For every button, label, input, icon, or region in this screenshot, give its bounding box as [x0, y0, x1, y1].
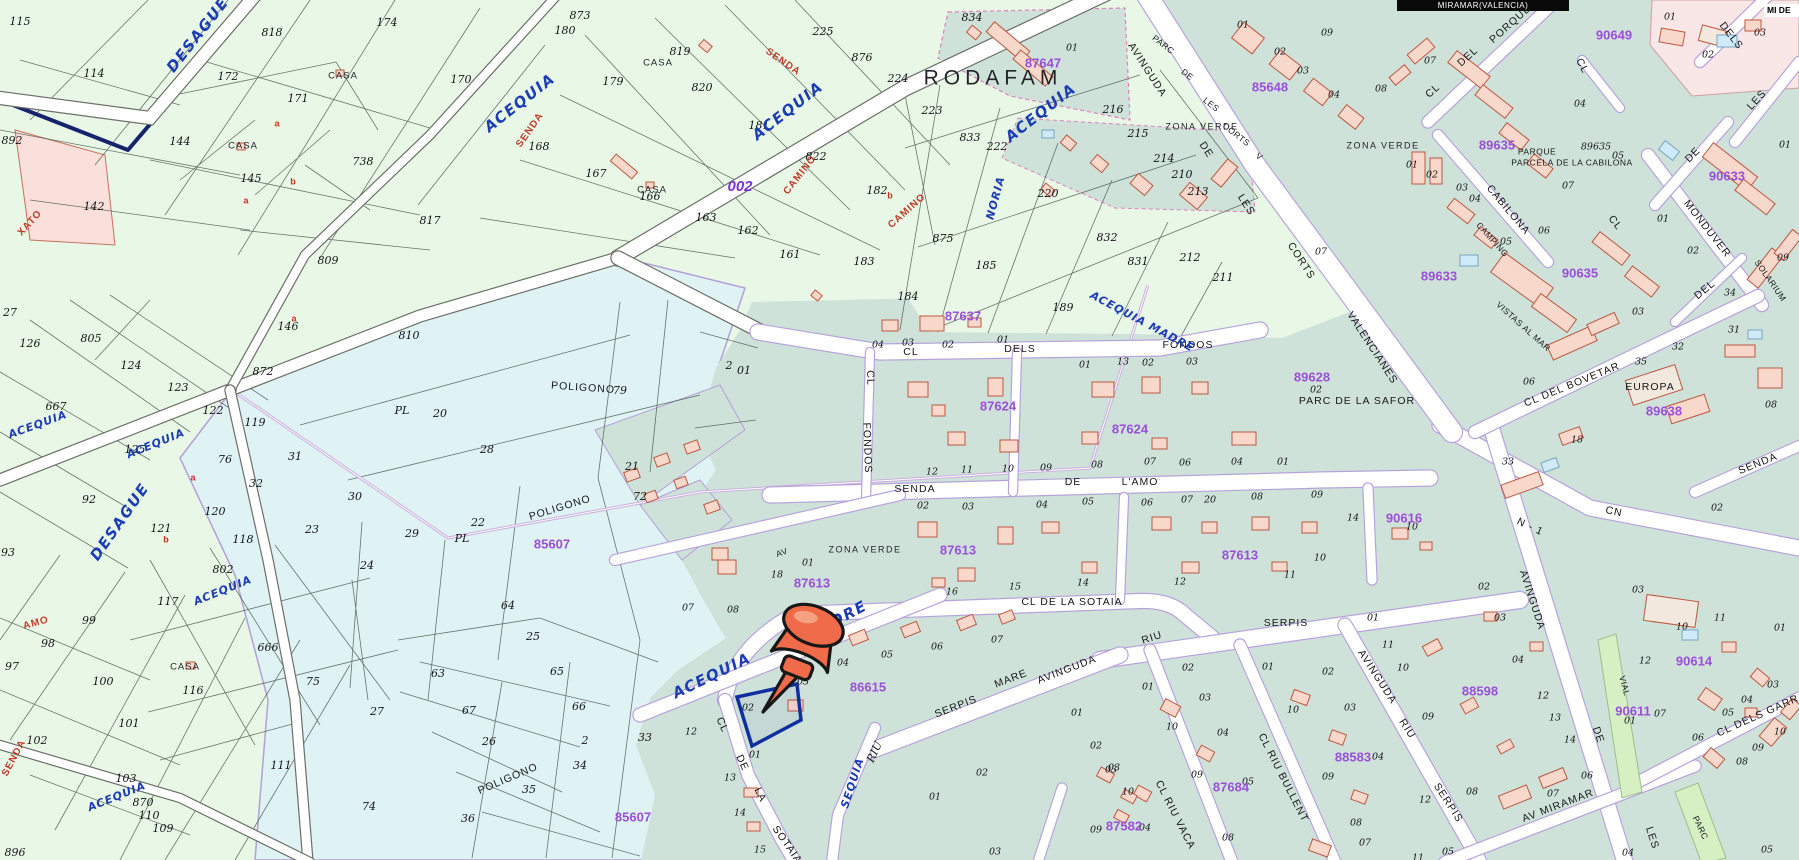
- map-label: PARC DE LA SAFOR: [1299, 395, 1415, 407]
- map-label: 833: [960, 131, 981, 144]
- map-label: 06: [1141, 498, 1153, 509]
- map-label: 100: [93, 675, 114, 688]
- map-label: 06: [1523, 377, 1535, 388]
- map-label: 102: [27, 734, 48, 747]
- edge-partial-label: MI DE: [1764, 4, 1799, 17]
- map-label: 118: [233, 533, 254, 546]
- map-label: 03: [1344, 703, 1356, 714]
- map-label: 90616: [1386, 510, 1422, 525]
- map-label: 01: [1406, 160, 1418, 171]
- map-label: 892: [2, 134, 23, 147]
- map-label: 67: [462, 704, 476, 717]
- map-label: 92: [82, 493, 96, 506]
- map-label: 01: [1367, 613, 1379, 624]
- map-label: 87582: [1106, 818, 1142, 833]
- map-label: 666: [258, 641, 279, 654]
- map-label: 144: [170, 135, 191, 148]
- map-label: 10: [1397, 663, 1409, 674]
- map-sheet-title: MIRAMAR(VALENCIA): [1397, 0, 1569, 11]
- map-label: 06: [1581, 771, 1593, 782]
- map-label: 98: [41, 637, 55, 650]
- map-label: 21: [624, 460, 639, 473]
- map-label: 06: [1179, 458, 1191, 469]
- map-label: 05: [1442, 847, 1454, 858]
- map-label: 64: [501, 599, 515, 612]
- map-label: 85607: [534, 536, 570, 551]
- map-label: 121: [151, 522, 172, 535]
- map-label: 09: [1752, 743, 1764, 754]
- map-label: 88598: [1462, 683, 1498, 698]
- map-label: 10: [1002, 464, 1014, 475]
- map-label: 75: [306, 675, 320, 688]
- map-label: 10: [1676, 622, 1688, 633]
- map-label: 14: [1077, 578, 1089, 589]
- map-label: 170: [451, 73, 472, 86]
- map-label: CASA: [328, 71, 358, 82]
- map-label: 12: [1639, 656, 1651, 667]
- map-label: 87624: [980, 398, 1017, 413]
- map-label: 16: [946, 587, 958, 598]
- map-label: 122: [203, 404, 224, 417]
- map-label: 09: [1321, 28, 1333, 39]
- map-label: 02: [1322, 667, 1334, 678]
- map-label: 04: [1469, 194, 1481, 205]
- map-label: 213: [1187, 185, 1209, 198]
- map-label: 215: [1127, 127, 1149, 140]
- map-label: 109: [153, 822, 174, 835]
- map-label: 15: [754, 845, 766, 856]
- map-label: 12: [1174, 577, 1186, 588]
- map-label: 07: [991, 635, 1004, 646]
- map-label: 03: [1186, 357, 1198, 368]
- map-label: 805: [81, 332, 102, 345]
- map-label: 29: [404, 527, 419, 540]
- map-label: 01: [1774, 623, 1786, 634]
- map-label: 32: [249, 477, 263, 490]
- map-label: 01: [1277, 457, 1289, 468]
- map-label: 02: [1426, 170, 1438, 181]
- map-label: 11: [1714, 613, 1726, 624]
- map-label: 87613: [1222, 547, 1258, 562]
- map-label: 182: [867, 184, 888, 197]
- map-label: 211: [1212, 271, 1234, 284]
- map-label: 04: [872, 340, 884, 351]
- map-label: 14: [1564, 735, 1576, 746]
- map-label: 126: [20, 337, 41, 350]
- map-label: 03: [962, 502, 974, 513]
- map-label: 142: [84, 200, 105, 213]
- map-label: 168: [529, 140, 550, 153]
- map-label: 124: [121, 359, 142, 372]
- map-label: 06: [1692, 733, 1704, 744]
- map-label: 07: [1424, 56, 1437, 67]
- map-label: 63: [431, 667, 445, 680]
- map-label: 20: [1203, 495, 1216, 506]
- map-label: RODAFAM: [924, 67, 1063, 90]
- map-label: 08: [1222, 833, 1234, 844]
- map-label: 225: [812, 25, 834, 38]
- map-label: 870: [133, 796, 154, 809]
- map-label: 184: [898, 290, 919, 303]
- map-label: 224: [887, 72, 909, 85]
- map-label: 14: [734, 808, 746, 819]
- map-label: CASA: [643, 58, 673, 69]
- map-label: 90633: [1709, 168, 1745, 183]
- map-label: 72: [633, 490, 647, 503]
- map-label: 33: [1502, 457, 1514, 468]
- map-label: 802: [213, 563, 234, 576]
- map-label: 111: [271, 759, 292, 772]
- map-label: 07: [1547, 789, 1560, 800]
- map-label: 02: [1711, 503, 1723, 514]
- map-label: 12: [1537, 691, 1549, 702]
- map-label: 214: [1153, 152, 1175, 165]
- map-label: 02: [917, 501, 929, 512]
- map-label: 04: [1372, 752, 1384, 763]
- map-label: 10: [1166, 722, 1178, 733]
- map-label: 145: [241, 172, 262, 185]
- map-label: 89638: [1646, 403, 1682, 418]
- map-label: 87684: [1213, 779, 1250, 794]
- map-label: 810: [399, 329, 420, 342]
- map-label: 171: [288, 92, 309, 105]
- map-label: 101: [119, 717, 140, 730]
- map-label: 08: [1350, 818, 1362, 829]
- map-label: PL: [394, 404, 410, 417]
- map-label: 01: [1657, 214, 1669, 225]
- map-label: 01: [749, 750, 761, 761]
- map-label: 896: [5, 846, 26, 859]
- map-label: 07: [1359, 838, 1372, 849]
- map-label: 04: [837, 658, 849, 669]
- map-label: 03: [1767, 680, 1779, 691]
- map-label: 162: [738, 224, 759, 237]
- map-label: 31: [1728, 325, 1740, 336]
- map-label: 12: [1419, 795, 1431, 806]
- map-label: 116: [183, 684, 204, 697]
- map-label: 183: [854, 255, 875, 268]
- map-label: 2: [725, 359, 733, 372]
- map-label: 119: [245, 416, 266, 429]
- map-label: CL: [903, 346, 918, 358]
- map-label: 07: [682, 603, 695, 614]
- map-label: 07: [1144, 457, 1157, 468]
- map-label: 74: [362, 800, 376, 813]
- map-label: 03: [1632, 307, 1644, 318]
- map-label: 99: [82, 614, 96, 627]
- map-label: 01: [737, 364, 751, 377]
- map-label: 07: [1315, 247, 1328, 258]
- map-label: 163: [696, 211, 717, 224]
- map-label: 08: [1466, 787, 1478, 798]
- map-label: 114: [84, 67, 105, 80]
- map-label: 04: [1036, 500, 1048, 511]
- map-label: 04: [1231, 457, 1243, 468]
- map-label: 04: [1328, 90, 1340, 101]
- map-label: 90635: [1562, 265, 1598, 280]
- map-label: 876: [852, 51, 873, 64]
- map-label: 10: [1122, 787, 1134, 798]
- map-label: 01: [1664, 12, 1676, 23]
- map-label: 174: [377, 16, 398, 29]
- map-label: 11: [961, 465, 973, 476]
- map-label: 01: [1142, 682, 1154, 693]
- map-label: 90614: [1676, 653, 1713, 668]
- map-label: 65: [550, 665, 564, 678]
- map-label: 834: [962, 11, 983, 24]
- map-label: 34: [1724, 288, 1736, 299]
- map-label: 03: [1632, 585, 1644, 596]
- map-label: 03: [1754, 28, 1766, 39]
- map-label: 09: [1422, 712, 1434, 723]
- map-label: FONDOS: [860, 422, 874, 473]
- map-label: 10: [1774, 727, 1786, 738]
- map-label: 90611: [1615, 703, 1650, 718]
- map-label: 01: [1237, 20, 1249, 31]
- map-label: 01: [1262, 662, 1274, 673]
- map-label: PARCELA DE LA CABILONA: [1511, 157, 1632, 167]
- map-label: 04: [1741, 695, 1753, 706]
- map-label: 01: [1079, 360, 1091, 371]
- map-label: 120: [205, 505, 226, 518]
- cadastral-map-viewport[interactable]: 1151148181741721711441457381428928178738…: [0, 0, 1799, 860]
- map-label: 820: [692, 81, 713, 94]
- map-label: 34: [573, 759, 587, 772]
- map-label: 12: [685, 727, 697, 738]
- map-label: 123: [168, 381, 189, 394]
- map-label: 872: [253, 365, 274, 378]
- map-label: 11: [1382, 640, 1394, 651]
- map-label: 03: [1456, 183, 1468, 194]
- map-label: 32: [1672, 342, 1684, 353]
- map-label: 172: [218, 70, 239, 83]
- map-label: 738: [353, 155, 374, 168]
- map-label: 02: [1274, 47, 1286, 58]
- map-label: 93: [1, 546, 15, 559]
- map-label: 07: [1654, 709, 1667, 720]
- map-label: 08: [1765, 400, 1777, 411]
- map-label: 10: [1314, 553, 1326, 564]
- map-label: 809: [318, 254, 339, 267]
- cadastral-map[interactable]: 1151148181741721711441457381428928178738…: [0, 0, 1799, 860]
- map-label: 87613: [940, 542, 976, 557]
- map-label: 97: [5, 660, 19, 673]
- map-label: 06: [931, 642, 943, 653]
- map-label: 28: [479, 443, 494, 456]
- map-label: 07: [1181, 495, 1194, 506]
- map-label: L'AMO: [1122, 476, 1159, 488]
- map-label: 110: [139, 809, 160, 822]
- map-label: 27: [369, 705, 384, 718]
- map-label: 167: [586, 167, 607, 180]
- map-label: 873: [570, 9, 591, 22]
- map-label: 90649: [1596, 27, 1632, 42]
- map-label: 35: [522, 783, 536, 796]
- map-label: 02: [1687, 246, 1699, 257]
- map-label: DELS: [1004, 343, 1035, 355]
- map-label: 18: [771, 570, 783, 581]
- map-label: 09: [1311, 490, 1323, 501]
- map-label: CL DE LA SOTAIA: [1021, 596, 1122, 608]
- map-label: 03: [1494, 613, 1506, 624]
- map-label: 13: [1117, 357, 1129, 368]
- map-label: 86615: [850, 679, 886, 694]
- map-label: 179: [603, 75, 624, 88]
- map-label: 02: [1478, 582, 1490, 593]
- map-label: 20: [432, 407, 447, 420]
- map-label: 002: [727, 178, 753, 195]
- map-label: ZONA VERDE: [1346, 140, 1419, 150]
- map-label: 216: [1102, 103, 1124, 116]
- map-label: SENDA: [894, 483, 935, 495]
- map-label: 04: [1622, 848, 1634, 859]
- map-label: 03: [1108, 763, 1120, 774]
- map-label: 212: [1179, 251, 1201, 264]
- map-label: 85648: [1252, 79, 1288, 94]
- map-label: 832: [1097, 231, 1118, 244]
- map-label: 2: [581, 734, 589, 747]
- map-label: 08: [1251, 492, 1263, 503]
- map-label: 04: [1217, 728, 1229, 739]
- map-label: 30: [348, 490, 362, 503]
- map-label: 01: [1066, 43, 1078, 54]
- map-label: 09: [1777, 253, 1789, 264]
- map-label: 88583: [1335, 749, 1371, 764]
- map-label: 03: [1199, 693, 1211, 704]
- map-label: 23: [304, 523, 319, 536]
- map-label: 33: [638, 731, 652, 744]
- map-label: 117: [158, 595, 179, 608]
- map-label: 89628: [1294, 369, 1330, 384]
- map-label: 11: [1284, 570, 1296, 581]
- map-label: 05: [1082, 497, 1094, 508]
- map-label: 818: [262, 26, 283, 39]
- map-label: 14: [1347, 513, 1359, 524]
- map-label: 09: [1191, 770, 1203, 781]
- map-label: 25: [525, 630, 540, 643]
- map-label: b: [290, 176, 296, 186]
- map-label: 08: [1375, 84, 1387, 95]
- map-label: 05: [881, 650, 893, 661]
- map-label: 220: [1037, 187, 1059, 200]
- map-label: 08: [1091, 460, 1103, 471]
- map-label: 87624: [1112, 421, 1149, 436]
- map-label: SERPIS: [1264, 617, 1309, 629]
- map-label: b: [163, 534, 169, 544]
- map-label: 01: [1779, 140, 1791, 151]
- map-label: 07: [1562, 181, 1575, 192]
- map-label: 22: [470, 516, 485, 529]
- map-label: 08: [727, 605, 739, 616]
- map-label: 89633: [1421, 268, 1457, 283]
- map-label: 02: [976, 768, 988, 779]
- map-label: b: [887, 190, 893, 200]
- map-label: 04: [1574, 99, 1586, 110]
- map-label: 180: [555, 24, 576, 37]
- map-label: 12: [926, 467, 938, 478]
- map-label: 115: [10, 15, 31, 28]
- map-label: 189: [1053, 301, 1074, 314]
- map-label: 13: [1549, 713, 1561, 724]
- map-label: ZONA VERDE: [1165, 121, 1238, 131]
- map-label: 02: [1182, 663, 1194, 674]
- map-label: 18: [1571, 435, 1583, 446]
- map-label: 31: [288, 450, 302, 463]
- map-label: 24: [359, 559, 374, 572]
- map-label: 222: [986, 140, 1008, 153]
- map-label: ZONA VERDE: [828, 544, 901, 554]
- map-label: DE: [1065, 476, 1082, 488]
- map-label: 875: [933, 232, 954, 245]
- map-label: 08: [1736, 757, 1748, 768]
- map-label: 36: [461, 812, 475, 825]
- map-label: 04: [1512, 655, 1524, 666]
- map-label: 89635: [1479, 137, 1515, 152]
- map-label: 161: [780, 248, 801, 261]
- map-label: 09: [1040, 463, 1052, 474]
- map-label: 01: [802, 558, 814, 569]
- map-label: PARQUE: [1518, 146, 1556, 156]
- map-label: CASA: [637, 185, 667, 196]
- map-label: 02: [742, 703, 754, 714]
- map-label: 89635: [1581, 142, 1611, 153]
- map-label: CASA: [228, 141, 258, 152]
- map-label: 01: [1071, 708, 1083, 719]
- map-label: 223: [921, 104, 943, 117]
- map-label: 03: [989, 847, 1001, 858]
- map-label: 85607: [615, 809, 651, 824]
- map-label: 76: [218, 453, 232, 466]
- map-label: 02: [1702, 50, 1714, 61]
- map-label: 02: [1142, 358, 1154, 369]
- map-label: 87613: [794, 575, 830, 590]
- map-label: 87637: [945, 308, 981, 323]
- map-label: 03: [1297, 66, 1309, 77]
- map-label: 210: [1171, 168, 1193, 181]
- map-label: 817: [420, 214, 441, 227]
- map-label: 06: [1538, 226, 1550, 237]
- map-label: CASA: [170, 662, 200, 673]
- map-label: 15: [1009, 582, 1021, 593]
- map-label: CL: [864, 370, 877, 386]
- map-label: 01: [929, 792, 941, 803]
- map-label: 05: [1761, 845, 1773, 856]
- map-label: PL: [454, 532, 470, 545]
- map-label: 10: [1287, 705, 1299, 716]
- map-label: 26: [481, 735, 496, 748]
- map-label: 13: [724, 773, 736, 784]
- map-label: 09: [1322, 772, 1334, 783]
- map-label: 02: [1090, 741, 1102, 752]
- map-label: 11: [1412, 853, 1424, 860]
- map-label: 05: [1722, 708, 1734, 719]
- map-label: EUROPA: [1625, 381, 1675, 393]
- map-label: 09: [1090, 825, 1102, 836]
- map-label: 831: [1128, 255, 1149, 268]
- map-label: 02: [942, 340, 954, 351]
- map-label: 185: [976, 259, 997, 272]
- map-label: 819: [670, 45, 691, 58]
- map-label: 35: [1635, 357, 1647, 368]
- map-label: 27: [2, 306, 17, 319]
- map-label: 66: [572, 700, 586, 713]
